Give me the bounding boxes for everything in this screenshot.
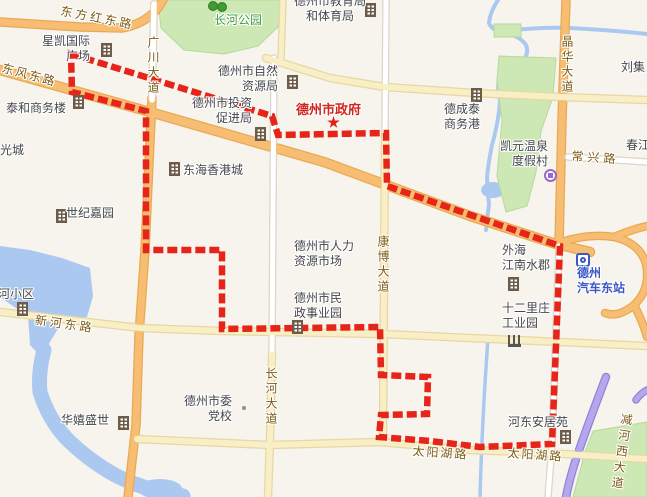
north-cross-rd [266, 58, 647, 100]
donghai-building-icon [169, 162, 180, 176]
taihe-building-icon [73, 95, 84, 109]
minor-north-rd [281, 0, 283, 60]
place-label-shiji-jiayuan[interactable]: 世纪嘉园 [66, 206, 114, 221]
jiaoyuju-building-icon [365, 3, 376, 17]
place-label-xinhe-residential[interactable]: 新河小区 [0, 287, 34, 302]
xinhexiaoqu-building-icon [17, 302, 28, 316]
cujinju-building-icon [255, 127, 266, 141]
place-label-kaiyuan-hotspring-resort[interactable]: 凯元温泉度假村 [500, 139, 548, 169]
place-label-donghai-hongkong-city[interactable]: 东海香港城 [183, 163, 243, 178]
place-label-changhe-park[interactable]: 长河公园 [214, 13, 262, 28]
place-label-xingkai-international-plaza[interactable]: 星凯国际广场 [42, 34, 90, 64]
changhe-ave-north [272, 58, 274, 355]
place-label-education-sports-bureau[interactable]: 德州市教育局和体育局 [294, 0, 366, 24]
place-label-huaxi-shengshi[interactable]: 华嬉盛世 [61, 413, 109, 428]
dechengtai-building-icon [471, 88, 482, 102]
park-tree-icon [217, 2, 227, 12]
place-label-liuji[interactable]: 刘集 [621, 60, 645, 75]
waihai-building-icon [508, 277, 519, 291]
place-label-dezhou-city-government[interactable]: 德州市政府 [296, 102, 361, 117]
place-label-civil-affairs-park[interactable]: 德州市民政事业园 [294, 291, 342, 321]
place-label-hedong-anjuyuan[interactable]: 河东安居苑 [508, 415, 568, 430]
road-label-jinghua: 晶华大道 [559, 35, 574, 95]
industrial-park-factory-icon [508, 335, 521, 347]
place-label-natural-resources-bureau[interactable]: 德州市自然资源局 [218, 64, 278, 94]
river-northeast-branch [505, 28, 647, 34]
place-label-party-school[interactable]: 德州市委党校 [184, 394, 232, 424]
bus-station-icon[interactable] [576, 253, 590, 267]
xingkai-building-icon [101, 43, 112, 57]
place-label-investment-promotion-bureau[interactable]: 德州市投资促进局 [192, 96, 252, 126]
place-label-chunjiang[interactable]: 春江 [626, 138, 647, 153]
lake-water [0, 246, 93, 358]
place-label-waihai-jiangnan[interactable]: 外海江南水郡 [502, 243, 550, 273]
road-label-changhe: 长河大道 [263, 367, 278, 427]
place-label-shierlizhuang-industrial-park[interactable]: 十二里庄工业园 [502, 301, 550, 331]
small-green-ne [494, 24, 521, 37]
place-label-human-resources-market[interactable]: 德州市人力资源市场 [294, 239, 354, 269]
hotspring-resort-icon[interactable] [544, 169, 557, 182]
huaxi-building-icon [118, 416, 129, 430]
place-label-dechengtai-business-port[interactable]: 德成泰商务港 [444, 102, 480, 132]
place-label-yangguangcheng[interactable]: 阳光城 [0, 143, 24, 158]
canal-southeast [480, 338, 488, 497]
road-label-kangbo: 康博大道 [375, 235, 390, 295]
ziranziyuan-building-icon [287, 75, 298, 89]
map-canvas[interactable]: 东方红东路东风东路广川大道晶华大道康博大道长河大道常兴路新河东路太阳湖路太阳湖路… [0, 0, 647, 497]
kangbo-ave-north [385, 0, 386, 135]
poi-dot [242, 406, 246, 410]
east-park-area [497, 56, 556, 212]
road-label-guangchuan: 广川大道 [145, 36, 160, 96]
place-label-taihe-business-building[interactable]: 泰和商务楼 [6, 101, 66, 116]
place-label-dezhou-east-bus-station[interactable]: 德州汽车东站 [577, 266, 625, 296]
minzheng-building-icon [292, 320, 303, 334]
hedong-building-icon [560, 430, 571, 444]
